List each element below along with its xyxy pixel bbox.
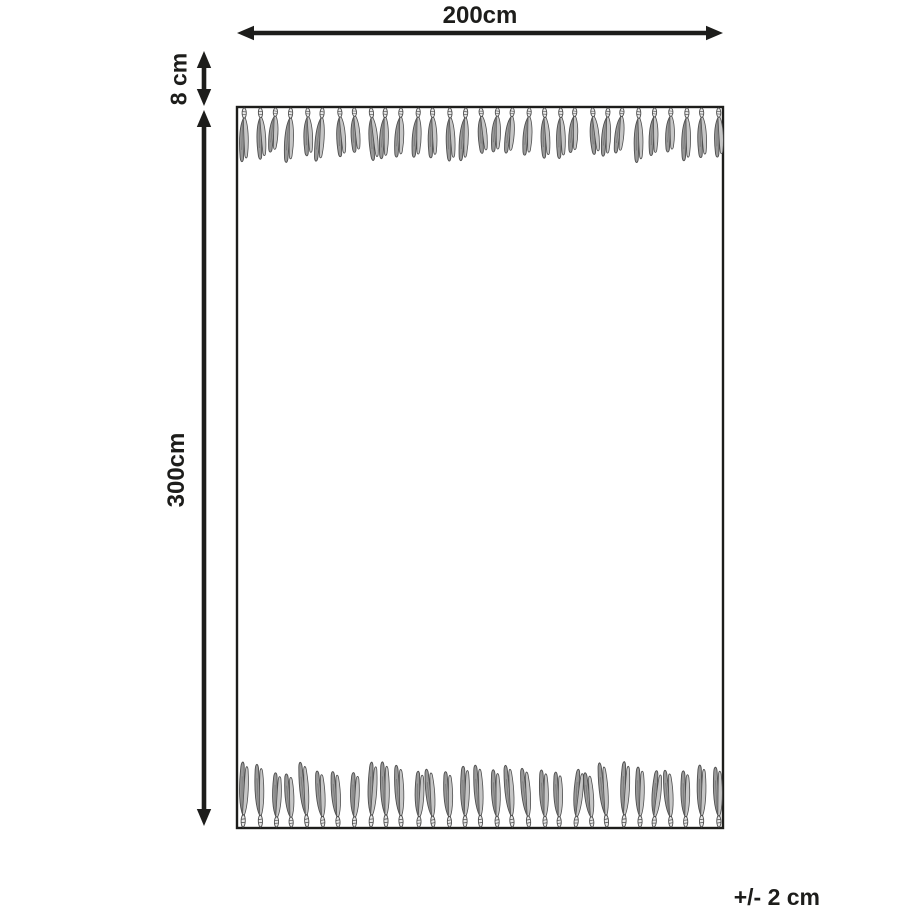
rug-outline bbox=[237, 107, 723, 828]
fringe-height-label: 8 cm bbox=[166, 53, 193, 105]
tolerance-label: +/- 2 cm bbox=[734, 884, 820, 911]
width-label: 200cm bbox=[237, 2, 723, 30]
diagram-canvas bbox=[0, 0, 920, 920]
rug-height-arrow bbox=[197, 110, 211, 826]
rug-dimension-diagram: 200cm 8 cm 300cm +/- 2 cm bbox=[0, 0, 920, 920]
height-label: 300cm bbox=[163, 433, 191, 508]
fringe-height-arrow bbox=[197, 51, 211, 106]
